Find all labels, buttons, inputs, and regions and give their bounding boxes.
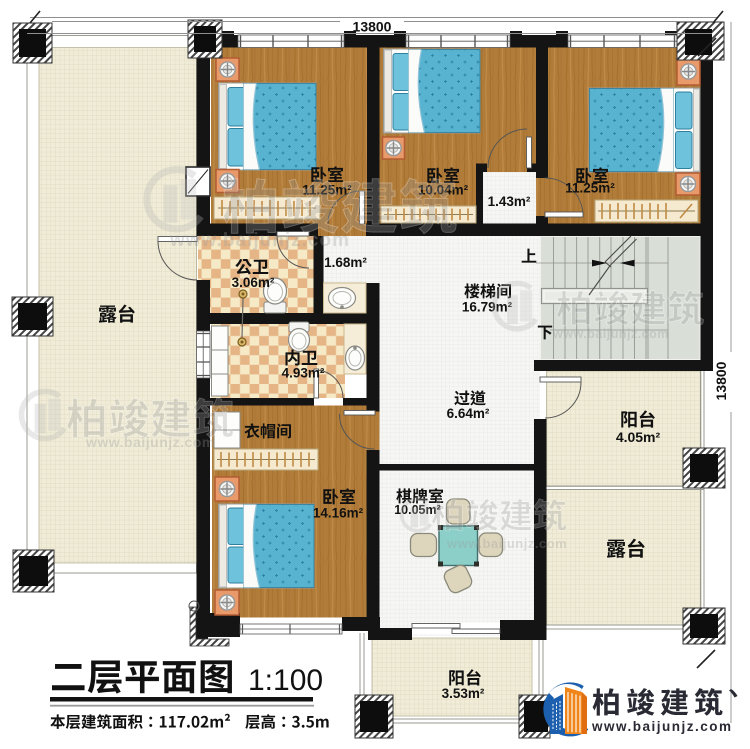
svg-text:www.baijunjz.com: www.baijunjz.com (552, 327, 669, 341)
svg-text:13800: 13800 (713, 361, 729, 400)
svg-text:13800: 13800 (353, 19, 392, 35)
svg-text:16.79m²: 16.79m² (462, 300, 513, 315)
svg-text:www.baijunjz.com: www.baijunjz.com (169, 230, 350, 251)
svg-text:14.16m²: 14.16m² (313, 506, 364, 521)
svg-text:1.43m²: 1.43m² (488, 194, 531, 209)
svg-text:11.25m²: 11.25m² (565, 181, 615, 196)
svg-text:www.baijunjz.com: www.baijunjz.com (446, 536, 567, 551)
svg-text:3.53m²: 3.53m² (442, 686, 485, 701)
svg-text:4.05m²: 4.05m² (616, 429, 661, 445)
svg-text:4.93m²: 4.93m² (282, 366, 325, 381)
svg-text:www.baijunjz.com: www.baijunjz.com (591, 719, 733, 734)
svg-text:6.64m²: 6.64m² (447, 406, 490, 421)
svg-text:3.06m²: 3.06m² (232, 275, 275, 290)
svg-text:1.68m²: 1.68m² (324, 255, 367, 270)
svg-text:1:100: 1:100 (248, 664, 323, 697)
svg-text:www.baijunjz.com: www.baijunjz.com (85, 434, 215, 450)
